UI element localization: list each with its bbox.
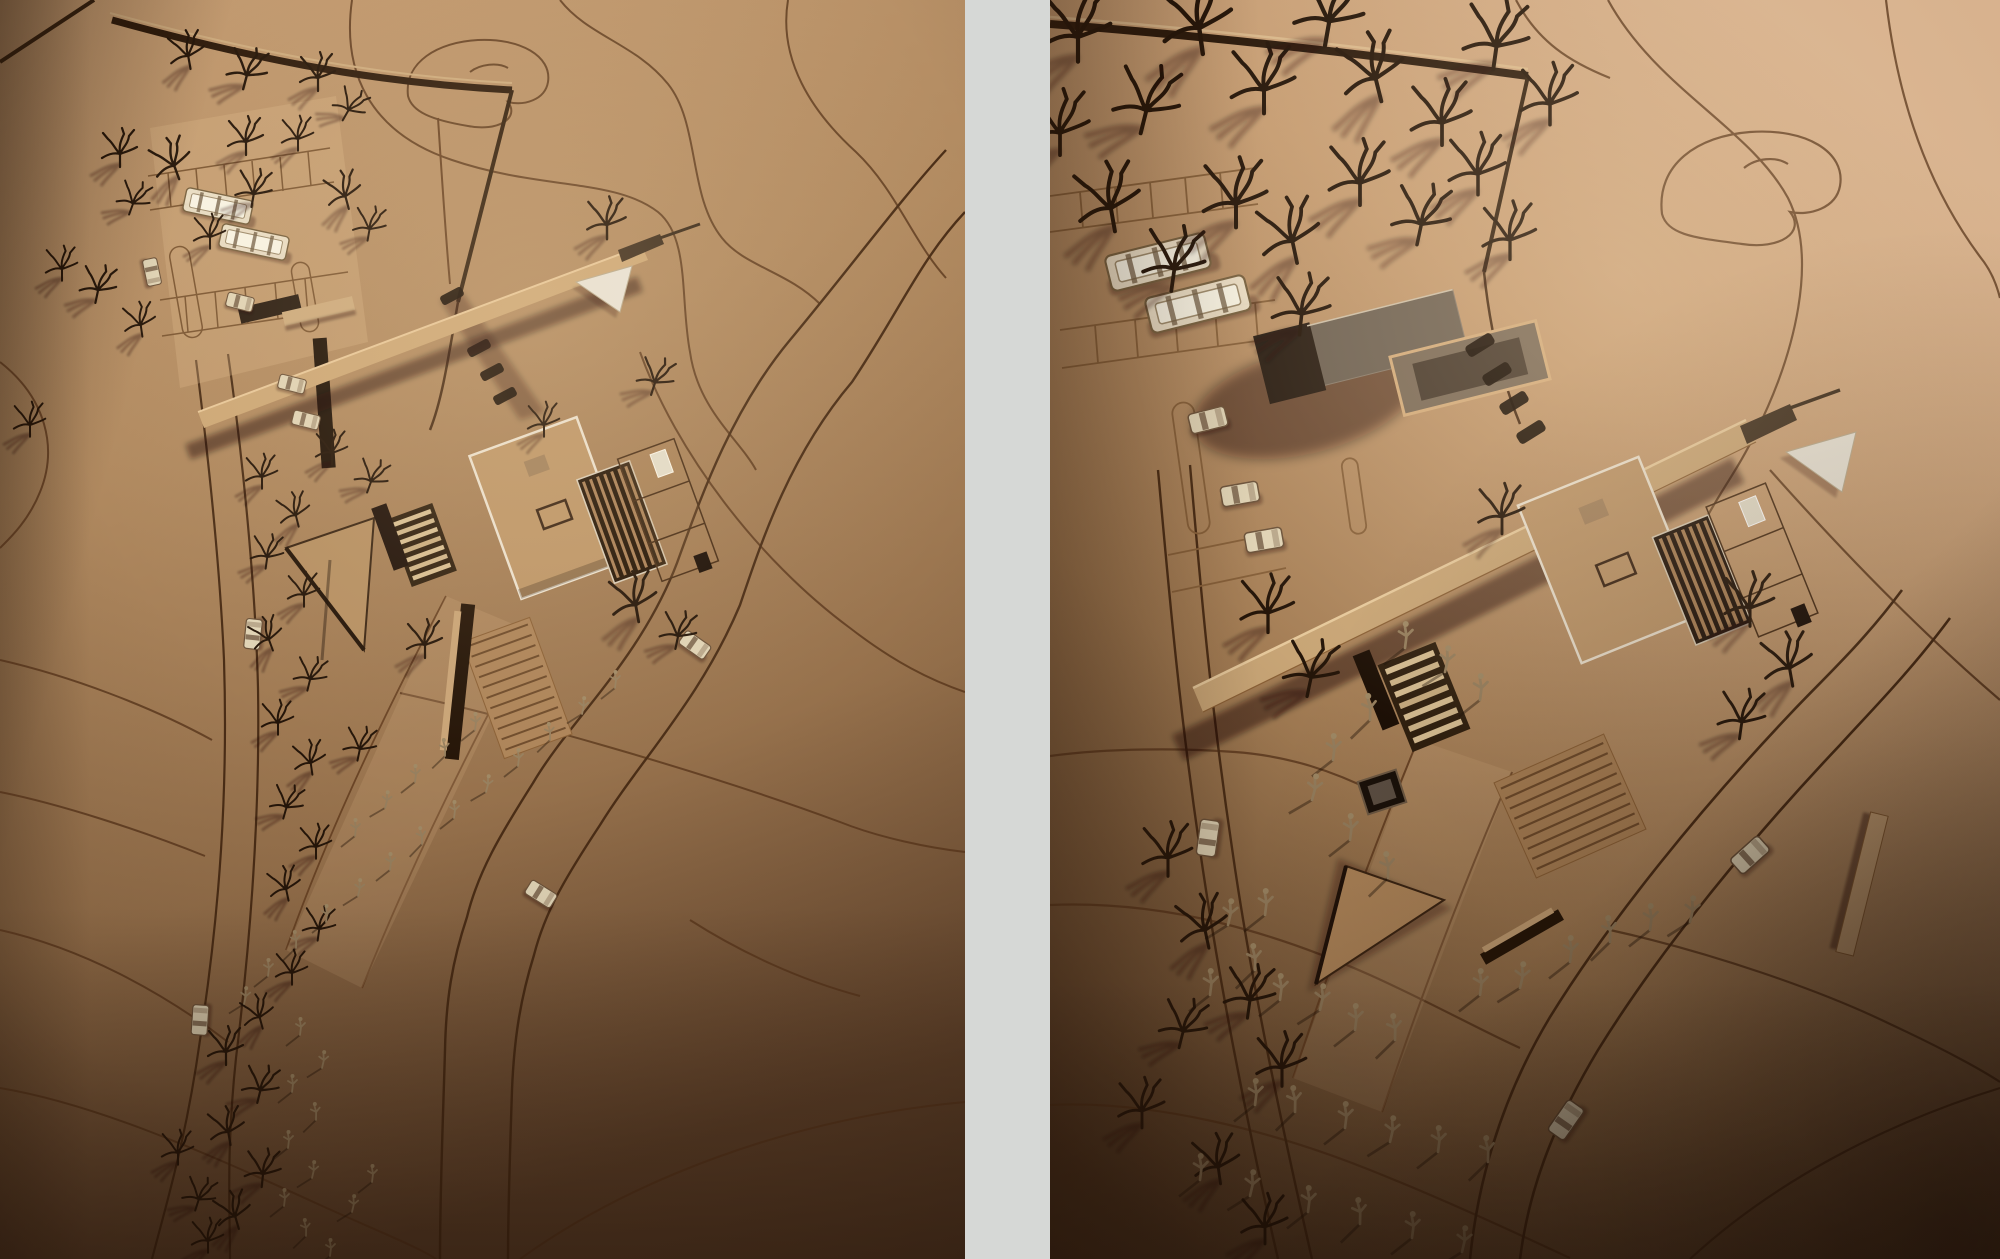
left-photo [0,0,965,1259]
photo-board [0,0,2000,1259]
right-photo-svg [1050,0,2000,1259]
photo-divider [965,0,1050,1259]
corner-shading [1050,0,2000,1259]
right-photo [1050,0,2000,1259]
left-photo-svg [0,0,965,1259]
left-car [243,616,265,651]
board-edge-shading [0,0,90,1259]
